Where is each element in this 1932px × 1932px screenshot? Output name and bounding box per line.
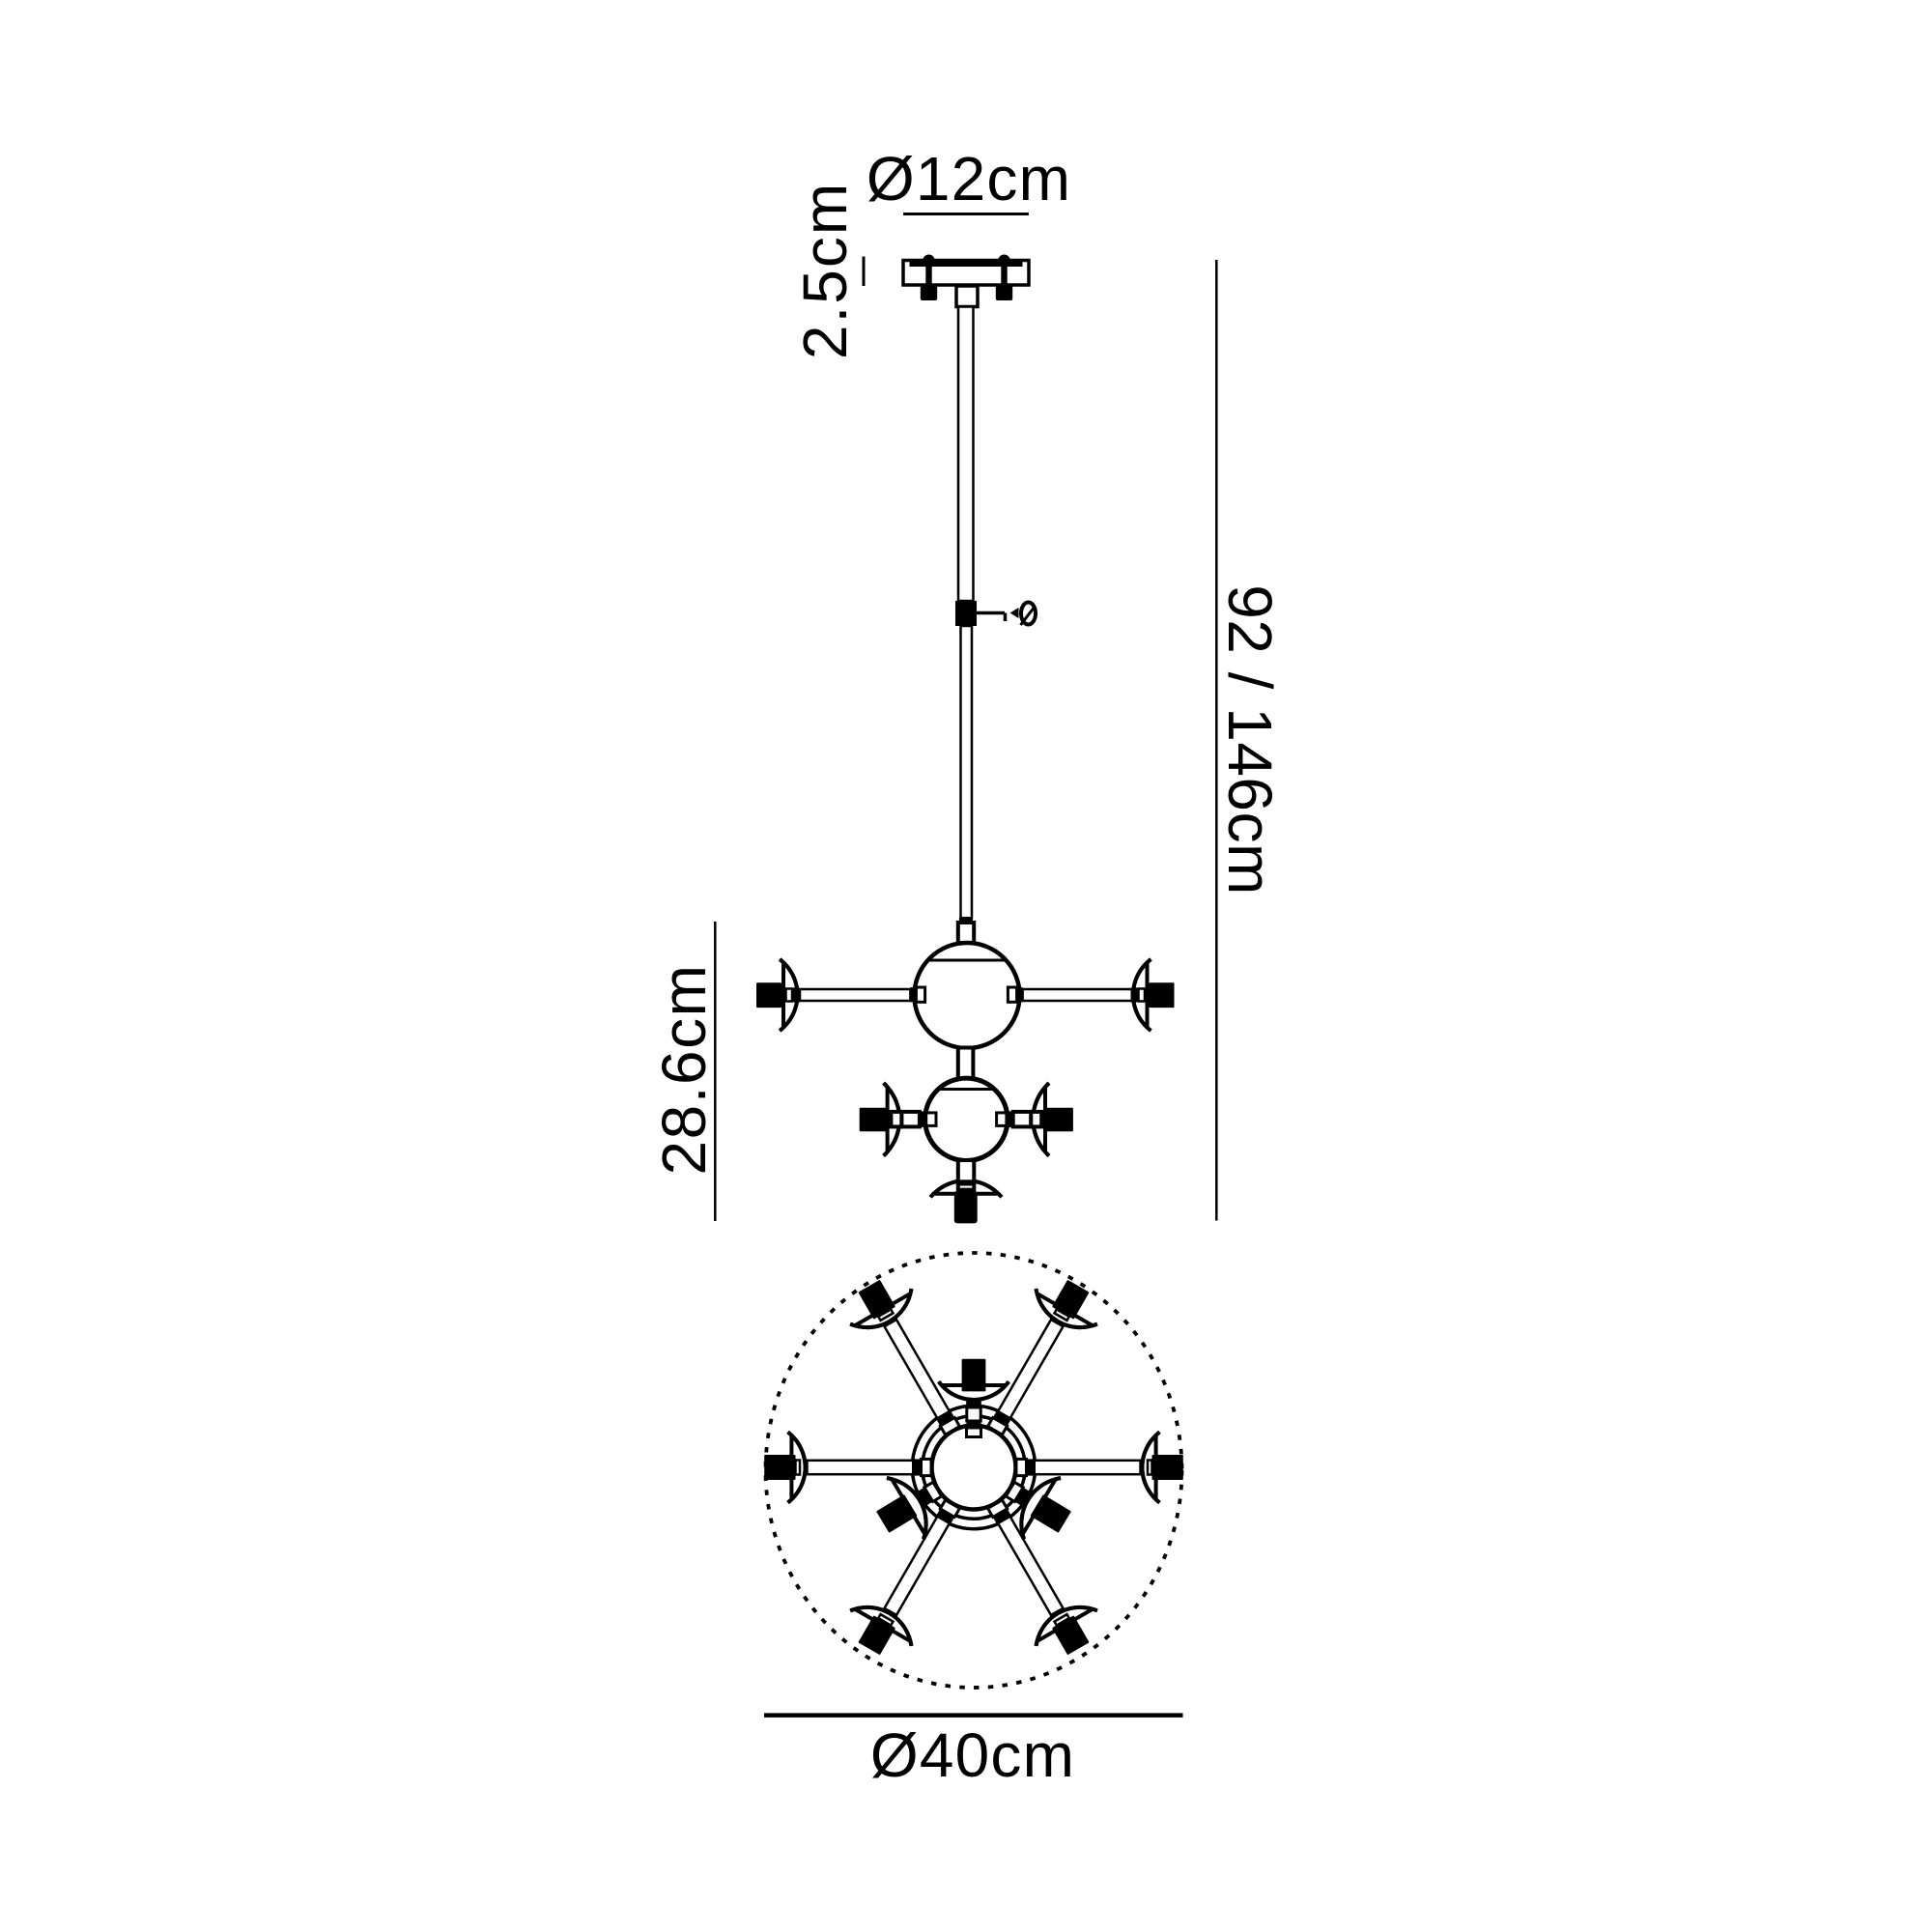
svg-text:Ø12cm: Ø12cm [867, 144, 1071, 213]
svg-text:2.5cm: 2.5cm [790, 182, 860, 359]
svg-text:28.6cm: 28.6cm [649, 964, 719, 1176]
svg-text:Ø40cm: Ø40cm [870, 1720, 1075, 1790]
svg-text:92 / 146cm: 92 / 146cm [1215, 584, 1285, 895]
